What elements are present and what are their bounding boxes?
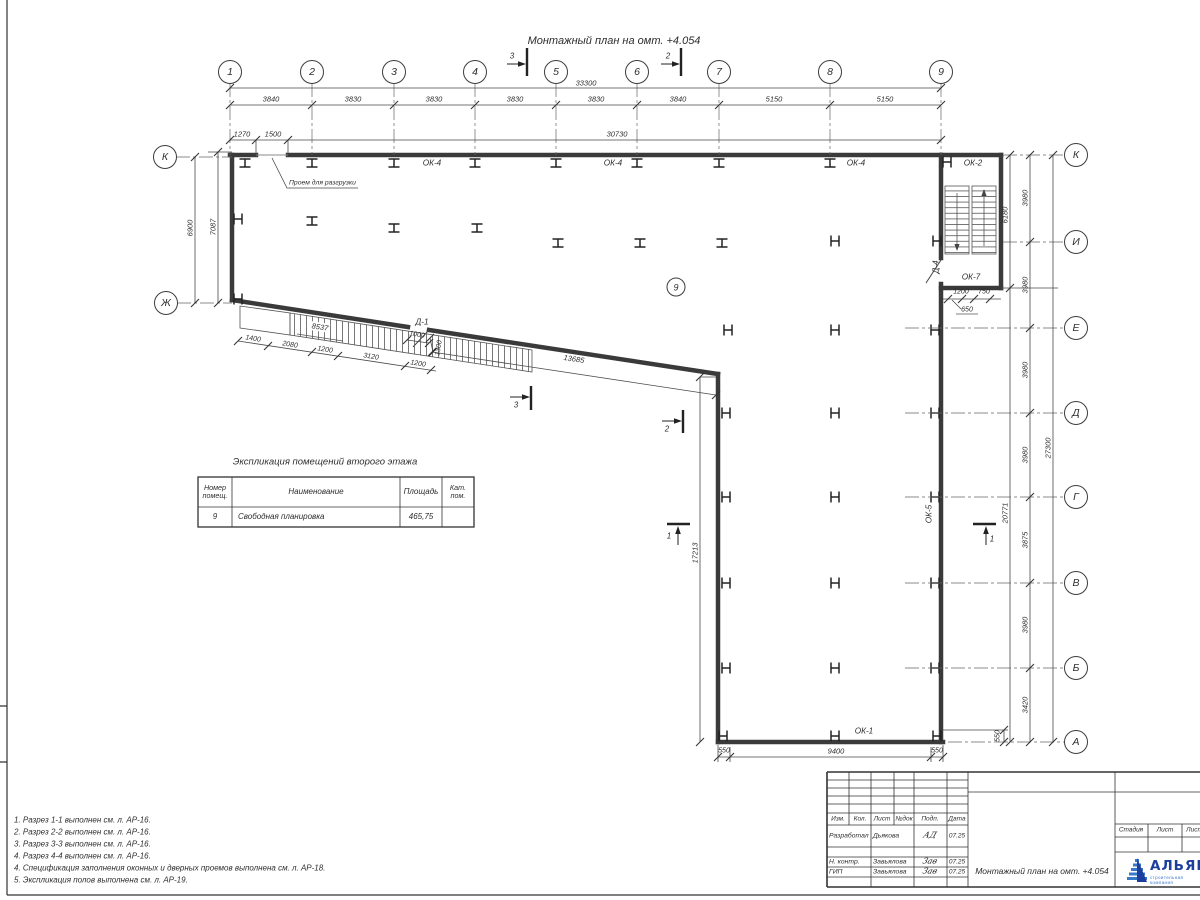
dim-top-seg-3: 3830 (426, 95, 443, 104)
axis-row-g: Г (1064, 485, 1088, 509)
dim-top-total: 33300 (576, 79, 597, 88)
dim-left-7087: 7087 (209, 219, 218, 236)
note-5: 4. Спецификация заполнения оконных и две… (14, 864, 325, 873)
axis-column-8: 8 (818, 60, 842, 84)
table-cell-number: 9 (198, 507, 232, 527)
door-leaves (413, 260, 941, 347)
tb-col-izm: Изм. (831, 816, 845, 823)
section-label-3-top: 3 (510, 52, 514, 61)
note-3: 3. Разрез 3-3 выполнен см. л. АР-16. (14, 840, 151, 849)
table-header-number: Номер помещ. (198, 477, 232, 507)
window-label-ok4-3: ОК-4 (847, 159, 865, 168)
door-label-d4: Д-4 (932, 260, 941, 273)
axis-row-a: А (1064, 730, 1088, 754)
axis-column-7: 7 (707, 60, 731, 84)
section-markers (507, 48, 996, 545)
ramp (240, 306, 978, 372)
table-title: Экспликация помещений второго этажа (233, 457, 418, 468)
tb-col-list: Лист (874, 816, 891, 823)
dim-bottom-9400: 9400 (828, 747, 845, 756)
section-label-2-top: 2 (666, 52, 670, 61)
axis-row-e: Е (1064, 316, 1088, 340)
axis-column-3: 3 (382, 60, 406, 84)
tb-col-kol: Кол. (854, 816, 867, 823)
tb-role-3: ГИП (829, 869, 842, 876)
dimension-lines (195, 88, 1058, 762)
dim-stairwell-6180: 6180 (1001, 207, 1010, 224)
tb-sheets: Листов (1186, 827, 1200, 834)
section-arrowheads (518, 61, 989, 534)
dim-right-seg-2: 3980 (1021, 277, 1030, 294)
dim-right-total: 27300 (1044, 438, 1053, 459)
page-title: Монтажный план на омт. +4.054 (528, 35, 701, 47)
tb-date-2: 07.25 (949, 859, 965, 866)
dim-right-seg-3: 3980 (1021, 362, 1030, 379)
column-beams (234, 157, 951, 742)
axis-row-i: И (1064, 230, 1088, 254)
tb-name-1: Дьякова (873, 833, 899, 840)
tb-doc-title: Монтажный план на омт. +4.054 (975, 866, 1109, 876)
room-number-tag: 9 (667, 278, 686, 297)
tb-name-3: Завьялова (873, 869, 907, 876)
dim-leg-17213: 17213 (691, 543, 700, 564)
dim-right-seg-7: 3420 (1021, 697, 1030, 714)
dim-bottom-550r: 550 (931, 748, 943, 755)
walls (230, 155, 1001, 742)
opening-note: Проем для разгрузки (289, 180, 356, 187)
tb-stage: Стадия (1119, 827, 1143, 834)
dim-top-seg-8: 5150 (877, 95, 894, 104)
dim-right-seg-5: 3875 (1021, 532, 1030, 549)
table-cell-name: Свободная планировка (232, 507, 406, 527)
dim-stair-650: 650 (961, 307, 973, 314)
axis-column-9: 9 (929, 60, 953, 84)
note-1: 1. Разрез 1-1 выполнен см. л. АР-16. (14, 816, 151, 825)
dim-top-sub-2: 1500 (265, 130, 282, 139)
tb-col-data: Дата (948, 816, 965, 823)
axis-row-k: К (1064, 143, 1088, 167)
alliance-logo-icon (1127, 858, 1147, 882)
drawing-screenshot: { "sheet": { "title": "Монтажный план на… (0, 0, 1200, 900)
dim-right-20771: 20771 (1001, 503, 1010, 524)
axis-column-5: 5 (544, 60, 568, 84)
drawing-sheet: Монтажный план на омт. +4.054 1 2 3 4 5 … (0, 0, 1200, 900)
tb-role-1: Разработал (829, 833, 869, 840)
table-cell-area: 465,75 (400, 507, 442, 527)
table-cell-cat (442, 507, 474, 527)
dim-top-seg-4: 3830 (507, 95, 524, 104)
window-label-ok4-1: ОК-4 (423, 159, 441, 168)
section-label-2-mid: 2 (665, 425, 669, 434)
dim-left-6900: 6900 (186, 220, 195, 237)
dim-top-seg-1: 3840 (263, 95, 280, 104)
window-label-ok1: ОК-1 (855, 727, 873, 736)
window-label-ok2: ОК-2 (964, 159, 982, 168)
dim-top-seg-2: 3830 (345, 95, 362, 104)
tb-role-2: Н. контр. (829, 859, 860, 866)
axis-column-1: 1 (218, 60, 242, 84)
dim-stair-1200: 1200 (953, 289, 969, 296)
tb-sign-2: Зав (921, 857, 938, 866)
dim-top-seg-7: 5150 (766, 95, 783, 104)
tb-col-podp: Подп. (921, 816, 938, 823)
dim-top-sub-1: 1270 (234, 130, 251, 139)
axis-row-d: Д (1064, 401, 1088, 425)
section-label-1-right: 1 (990, 535, 994, 544)
dim-right-seg-1: 3980 (1021, 190, 1030, 207)
dim-top-sub-3: 30730 (607, 130, 628, 139)
section-label-1-left: 1 (667, 532, 671, 541)
door-label-d1: Д-1 (415, 318, 428, 327)
tb-name-2: Завьялова (873, 859, 907, 866)
axis-column-6: 6 (625, 60, 649, 84)
alliance-logo-tagline: строительная компания (1150, 875, 1200, 885)
table-header-cat: Кат. пом. (442, 477, 474, 507)
tb-date-1: 07.25 (949, 833, 965, 840)
note-6: 5. Экспликация полов выполнена см. л. АР… (14, 876, 188, 885)
table-header-name: Наименование (232, 477, 400, 507)
tb-sign-1: АД (922, 831, 937, 840)
axis-row-v: В (1064, 571, 1088, 595)
tb-date-3: 07.25 (949, 869, 965, 876)
table-header-area: Площадь (400, 477, 442, 507)
alliance-logo-text: АЛЬЯНС (1150, 858, 1200, 874)
dim-top-seg-5: 3830 (588, 95, 605, 104)
dim-right-seg-6: 3980 (1021, 617, 1030, 634)
axis-column-2: 2 (300, 60, 324, 84)
window-label-ok4-2: ОК-4 (604, 159, 622, 168)
window-label-ok7: ОК-7 (962, 273, 980, 282)
note-4: 4. Разрез 4-4 выполнен см. л. АР-16. (14, 852, 151, 861)
dim-bottom-550l: 550 (718, 748, 730, 755)
dim-top-seg-6: 3840 (670, 95, 687, 104)
tb-sheet: Лист (1157, 827, 1174, 834)
axis-column-4: 4 (463, 60, 487, 84)
dim-bottom-right-550: 550 (995, 730, 1002, 742)
stair (945, 186, 996, 254)
window-label-ok5: ОК-5 (925, 505, 934, 523)
dim-stair-750: 750 (978, 289, 990, 296)
note-2: 2. Разрез 2-2 выполнен см. л. АР-16. (14, 828, 151, 837)
tb-sign-3: Зав (921, 867, 938, 876)
axis-row-k-left: К (153, 145, 177, 169)
axis-row-b: Б (1064, 656, 1088, 680)
section-label-3-mid: 3 (514, 401, 518, 410)
axis-row-zh-left: Ж (154, 291, 178, 315)
tb-col-ndok: №док (895, 816, 912, 823)
dim-right-seg-4: 3980 (1021, 447, 1030, 464)
